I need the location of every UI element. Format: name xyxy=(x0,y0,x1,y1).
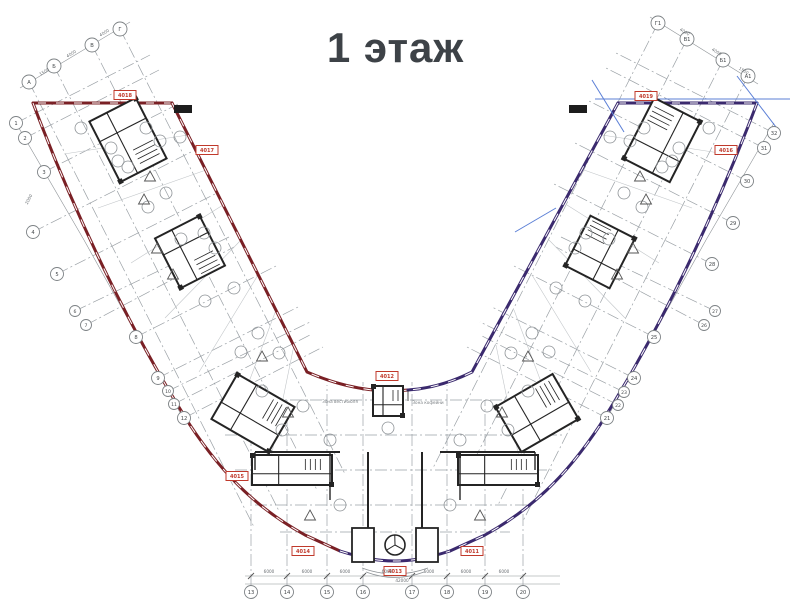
interior-cores xyxy=(87,95,704,487)
room-tag-circle xyxy=(160,187,172,199)
grid-bubble-label: 3 xyxy=(42,170,45,176)
grid-bubble-label: 27 xyxy=(712,309,718,315)
room-tag-circle xyxy=(579,295,591,307)
core-outer-wall xyxy=(565,216,635,289)
room-tag-circle xyxy=(454,434,466,446)
grid-bubble-label: 30 xyxy=(744,179,751,185)
floor-plan-page: 1 этаж АБВГГ1В1Б1А1123456789101112131415… xyxy=(0,0,791,600)
grid-bubble-label: 22 xyxy=(615,403,621,409)
grid-bubble-label: 5 xyxy=(55,272,58,278)
entrance-marker-label: 4016 xyxy=(719,148,733,154)
entrance-marker-label: 4012 xyxy=(380,374,394,380)
grid-bubble-label: 23 xyxy=(621,390,627,396)
grid-bubble-label: 8 xyxy=(134,335,137,341)
core-outer-wall xyxy=(89,98,166,182)
zone-label: Зона кофейни xyxy=(412,400,444,405)
dimension-label: 6000 xyxy=(424,569,435,574)
partition-lines xyxy=(64,135,726,482)
grid-bubble-label: 17 xyxy=(409,590,416,596)
wall-pier xyxy=(371,384,376,389)
grid-bubble-label: 15 xyxy=(324,590,331,596)
grid-bubble-label: В xyxy=(90,43,94,49)
core-cluster xyxy=(250,453,334,487)
dimension-label: 4000 xyxy=(98,28,110,38)
room-tag-circle xyxy=(481,400,493,412)
grid-axis-line xyxy=(514,266,654,337)
wall-pier xyxy=(400,413,405,418)
core-cluster xyxy=(152,213,227,291)
dimension-label: 42000 xyxy=(395,578,409,583)
entrance-marker-label: 4019 xyxy=(639,94,653,100)
grid-bubble-label: 2 xyxy=(23,136,26,142)
grid-bubble-label: Г1 xyxy=(655,21,661,27)
grid-bubble-label: 12 xyxy=(181,416,188,422)
black-marker-box xyxy=(174,105,192,113)
wall-pier xyxy=(535,482,540,487)
core-cluster xyxy=(456,453,540,487)
dimension-label: 6000 xyxy=(302,569,313,574)
grid-bubble-label: 14 xyxy=(284,590,291,596)
room-tag-circle xyxy=(273,347,285,359)
entrance-vestibule-box xyxy=(352,528,374,562)
grid-bubble-label: 20 xyxy=(520,590,527,596)
floor-plan-svg: АБВГГ1В1Б1А11234567891011121314151617181… xyxy=(0,0,791,600)
grid-bubble-label: 13 xyxy=(248,590,255,596)
entrance-vestibule-box xyxy=(416,528,438,562)
room-tag-circle xyxy=(543,346,555,358)
grid-bubble-label: Б xyxy=(52,64,56,70)
dimension-label: 6000 xyxy=(264,569,275,574)
room-tag-circle xyxy=(618,187,630,199)
entrance-marker-label: 4018 xyxy=(118,93,132,99)
grid-bubble-label: Г xyxy=(118,27,121,33)
dimension-label: 2000 xyxy=(24,193,34,205)
grid-bubble-label: 29 xyxy=(730,221,737,227)
grid-bubble-label: 11 xyxy=(171,402,177,408)
core-cluster xyxy=(493,371,582,454)
grid-bubble-label: Б1 xyxy=(720,58,727,64)
dimension-label: 6000 xyxy=(461,569,472,574)
room-tag-circle xyxy=(199,295,211,307)
grid-axis-line xyxy=(158,307,298,378)
core-outer-wall xyxy=(155,216,225,289)
room-tag-circle xyxy=(252,327,264,339)
grid-bubble-label: 32 xyxy=(771,131,778,137)
grid-bubble-label: В1 xyxy=(684,37,691,43)
entrance-marker-label: 4017 xyxy=(200,148,214,154)
room-tag-circle xyxy=(297,400,309,412)
black-marker-box xyxy=(569,105,587,113)
core-cluster xyxy=(87,95,170,185)
grid-bubble-label: 9 xyxy=(156,376,159,382)
grid-bubble-label: А xyxy=(27,80,31,86)
core-outer-wall xyxy=(373,386,403,416)
dimension-label: 6000 xyxy=(499,569,510,574)
door-triangle xyxy=(257,351,268,361)
dimension-line xyxy=(706,123,774,240)
grid-bubble-label: 16 xyxy=(360,590,367,596)
room-tag-circles xyxy=(75,122,715,511)
dimension-label: 6000 xyxy=(382,569,393,574)
grid-bubble-label: 21 xyxy=(604,416,611,422)
core-cluster xyxy=(209,371,298,454)
core-cluster xyxy=(621,95,704,185)
room-tag-circle xyxy=(526,327,538,339)
door-triangle xyxy=(305,510,316,520)
grid-bubble-label: 18 xyxy=(444,590,451,596)
grid-bubble-label: 25 xyxy=(651,335,658,341)
core-outer-wall xyxy=(495,374,578,452)
grid-axis-line xyxy=(54,66,279,511)
room-tag-circle xyxy=(235,346,247,358)
room-tag-circle xyxy=(228,282,240,294)
core-cluster xyxy=(562,213,637,291)
grid-bubble-label: 19 xyxy=(482,590,489,596)
entrance-marker-label: 4014 xyxy=(296,549,310,555)
grid-bubble-label: 7 xyxy=(85,323,88,329)
room-tag-circle xyxy=(142,201,154,213)
grid-axis-line xyxy=(136,266,276,337)
core-outer-wall xyxy=(211,374,294,452)
room-tag-circle xyxy=(703,122,715,134)
grid-bubble-label: 1 xyxy=(14,121,17,127)
zone-label: Зона вестибюля xyxy=(322,399,358,404)
room-tag-circle xyxy=(382,422,394,434)
core-cluster xyxy=(371,384,408,418)
room-tag-circle xyxy=(636,201,648,213)
grid-bubble-label: 31 xyxy=(761,146,768,152)
grid-axis-line xyxy=(492,307,634,378)
grid-bubble-label: 26 xyxy=(701,323,707,329)
entrance-marker-label: 4011 xyxy=(465,549,479,555)
grid-bubble-label: 24 xyxy=(631,376,638,382)
door-triangle xyxy=(475,510,486,520)
dimension-label: 6000 xyxy=(340,569,351,574)
grid-bubble-label: 6 xyxy=(74,309,77,315)
entrance-marker-label: 4015 xyxy=(230,474,244,480)
wall-pier xyxy=(250,453,255,458)
grid-bubble-label: 10 xyxy=(165,389,171,395)
room-tag-circle xyxy=(550,282,562,294)
grid-bubble-label: 28 xyxy=(709,262,716,268)
